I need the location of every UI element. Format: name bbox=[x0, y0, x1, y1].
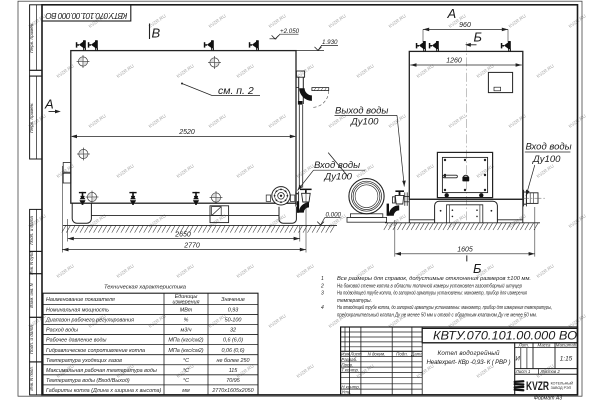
svg-text:2650: 2650 bbox=[174, 231, 191, 238]
svg-text:3: 3 bbox=[321, 291, 324, 297]
svg-text:Н.контр.: Н.контр. bbox=[341, 384, 360, 389]
svg-text:Расход воды: Расход воды bbox=[46, 328, 78, 334]
svg-text:см. п. 2: см. п. 2 bbox=[218, 85, 254, 97]
svg-text:И: И bbox=[515, 356, 520, 362]
svg-text:Ду100: Ду100 bbox=[324, 172, 353, 183]
svg-text:МВт: МВт bbox=[180, 308, 193, 314]
svg-text:Утв.: Утв. bbox=[341, 390, 351, 395]
svg-text:2770: 2770 bbox=[183, 242, 200, 249]
svg-text:не более 250: не более 250 bbox=[217, 358, 250, 364]
svg-text:%: % bbox=[184, 318, 189, 324]
svg-text:Heatexpert- КВр -0,93- К ( РВР: Heatexpert- КВр -0,93- К ( РВР ) bbox=[427, 359, 511, 366]
svg-text:Изм.: Изм. bbox=[341, 351, 350, 356]
svg-text:Масштаб: Масштаб bbox=[556, 343, 577, 348]
svg-text:КВТУ.070.101.00.000 ВО: КВТУ.070.101.00.000 ВО bbox=[45, 11, 128, 20]
svg-text:температуры.: температуры. bbox=[337, 298, 372, 304]
svg-text:Вход воды: Вход воды bbox=[526, 141, 572, 152]
svg-text:Лист 1: Лист 1 bbox=[515, 369, 531, 374]
svg-text:измерения: измерения bbox=[173, 300, 200, 306]
svg-text:Формат А3: Формат А3 bbox=[534, 395, 562, 400]
svg-text:На отводящей трубе котла, до з: На отводящей трубе котла, до запорной ар… bbox=[337, 304, 552, 311]
svg-text:1:15: 1:15 bbox=[560, 355, 573, 362]
svg-text:Вход воды: Вход воды bbox=[314, 160, 360, 171]
svg-text:м3/ч: м3/ч bbox=[181, 328, 192, 334]
svg-text:Инв. N подл.: Инв. N подл. bbox=[29, 366, 34, 390]
svg-text:На боковой стенке котла в обла: На боковой стенке котла в области топочн… bbox=[337, 282, 522, 289]
svg-text:°С: °С bbox=[183, 378, 189, 384]
svg-text:2520: 2520 bbox=[178, 129, 195, 136]
svg-text:Температура уходящих газов: Температура уходящих газов bbox=[46, 358, 122, 364]
svg-text:0,93: 0,93 bbox=[228, 308, 239, 314]
svg-text:В: В bbox=[152, 26, 161, 41]
svg-text:960: 960 bbox=[459, 22, 471, 29]
svg-text:КВТУ.070.101.00.000 ВО: КВТУ.070.101.00.000 ВО bbox=[433, 330, 577, 342]
svg-text:А: А bbox=[44, 97, 54, 112]
svg-text:Гидравлическое сопротивление к: Гидравлическое сопротивление котла bbox=[46, 348, 145, 354]
svg-text:1605: 1605 bbox=[457, 246, 473, 253]
svg-text:Наименование показателя: Наименование показателя bbox=[46, 297, 115, 303]
svg-text:Б: Б bbox=[474, 30, 483, 45]
svg-text:KVZR: KVZR bbox=[526, 379, 549, 393]
svg-text:Т.контр.: Т.контр. bbox=[341, 368, 359, 373]
svg-text:А: А bbox=[447, 6, 457, 21]
svg-text:Номинальная мощность: Номинальная мощность bbox=[46, 308, 109, 314]
svg-text:N докум.: N докум. bbox=[368, 351, 386, 356]
svg-text:Все размеры для справок, допус: Все размеры для справок, допустимые откл… bbox=[337, 276, 531, 282]
svg-text:2770х1605х2050: 2770х1605х2050 bbox=[211, 388, 253, 394]
svg-text:Ду100: Ду100 bbox=[350, 117, 379, 128]
svg-text:Котел водогрейный: Котел водогрейный bbox=[438, 350, 501, 357]
svg-text:Габариты котла (Длина х ширина: Габариты котла (Длина х ширина х высота) bbox=[46, 388, 161, 394]
svg-text:мм: мм bbox=[182, 388, 190, 394]
svg-text:32: 32 bbox=[230, 328, 236, 334]
svg-text:0,6 (6,0): 0,6 (6,0) bbox=[223, 338, 243, 344]
svg-text:КОТЕЛЬНЫЙ: КОТЕЛЬНЫЙ bbox=[551, 381, 574, 385]
svg-text:1260: 1260 bbox=[446, 58, 462, 65]
svg-text:Пров.: Пров. bbox=[341, 362, 353, 367]
svg-text:МПа (кгс/см2): МПа (кгс/см2) bbox=[168, 348, 203, 354]
svg-text:ЗАВОД РЭП: ЗАВОД РЭП bbox=[551, 386, 572, 390]
svg-text:Масса: Масса bbox=[538, 343, 552, 348]
svg-text:Взам. инв. N: Взам. инв. N bbox=[29, 282, 34, 307]
svg-text:Ду100: Ду100 bbox=[532, 154, 561, 165]
svg-text:Техническая характеристика: Техническая характеристика bbox=[104, 285, 187, 291]
svg-text:Дата: Дата bbox=[410, 351, 423, 356]
svg-text:Значение: Значение bbox=[221, 297, 245, 303]
svg-text:Подп.: Подп. bbox=[396, 351, 408, 356]
svg-text:На подводящей трубе котла, до: На подводящей трубе котла, до запорной а… bbox=[337, 290, 527, 297]
svg-text:Разраб.: Разраб. bbox=[341, 357, 357, 362]
svg-text:Температура воды (Вход/Выход): Температура воды (Вход/Выход) bbox=[46, 378, 130, 384]
svg-text:50-100: 50-100 bbox=[225, 318, 242, 324]
svg-text:0,06 (0,6): 0,06 (0,6) bbox=[221, 348, 244, 354]
svg-text:Рабочее давление воды: Рабочее давление воды bbox=[46, 338, 106, 344]
svg-text:Лист: Лист bbox=[349, 351, 362, 356]
svg-text:предохранительный клапан Ду не: предохранительный клапан Ду не менее 50 … bbox=[337, 312, 537, 319]
svg-text:4: 4 bbox=[321, 305, 324, 311]
svg-text:Лит.: Лит. bbox=[518, 343, 529, 348]
svg-text:2: 2 bbox=[320, 283, 324, 289]
svg-text:1: 1 bbox=[321, 276, 324, 282]
svg-text:Инв. N дубл.: Инв. N дубл. bbox=[29, 250, 34, 274]
svg-text:°С: °С bbox=[183, 358, 189, 364]
svg-text:МПа (кгс/см2): МПа (кгс/см2) bbox=[168, 338, 203, 344]
